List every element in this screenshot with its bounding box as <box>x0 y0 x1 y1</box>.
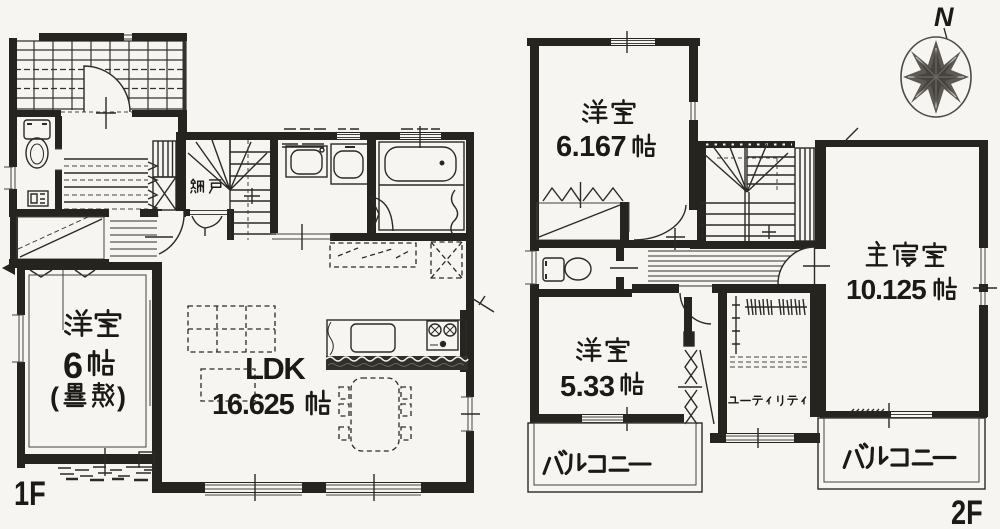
svg-text:6.167: 6.167 <box>556 131 626 163</box>
svg-text:10.125: 10.125 <box>846 274 926 305</box>
svg-text:6: 6 <box>63 345 83 386</box>
svg-text:1F: 1F <box>14 474 46 513</box>
svg-text:16.625: 16.625 <box>212 389 295 421</box>
svg-text:2F: 2F <box>951 493 983 529</box>
svg-text:): ) <box>117 382 126 412</box>
svg-text:5.33: 5.33 <box>560 371 615 403</box>
svg-text:LDK: LDK <box>245 351 306 386</box>
svg-text:(: ( <box>50 382 59 412</box>
svg-text:N: N <box>934 2 954 32</box>
